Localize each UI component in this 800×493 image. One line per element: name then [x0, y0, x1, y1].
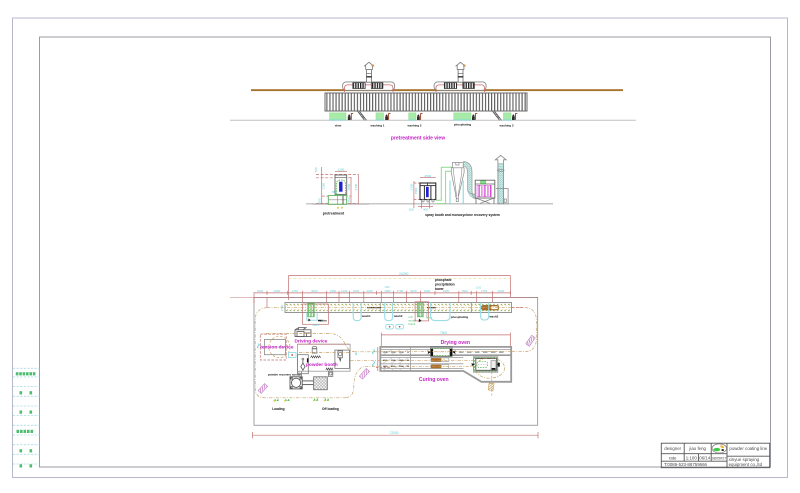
svg-text:washing 1: washing 1 [370, 123, 385, 127]
svg-text:3000: 3000 [311, 289, 318, 293]
svg-text:800: 800 [318, 198, 322, 203]
svg-text:3445: 3445 [366, 289, 373, 293]
svg-text:1500: 1500 [257, 289, 264, 293]
svg-text:flumk: flumk [408, 322, 415, 326]
svg-text:designer: designer [664, 446, 681, 451]
svg-text:Off loading: Off loading [322, 407, 339, 411]
svg-text:1150: 1150 [322, 182, 326, 189]
svg-text:1500: 1500 [424, 289, 431, 293]
svg-text:2450: 2450 [330, 289, 337, 293]
svg-text:3230: 3230 [410, 289, 417, 293]
svg-text:powder coating line: powder coating line [729, 446, 767, 451]
svg-text:750: 750 [347, 197, 351, 202]
svg-text:850: 850 [332, 190, 337, 194]
svg-text:washing 3: washing 3 [499, 123, 514, 127]
svg-text:7500: 7500 [440, 331, 447, 335]
svg-text:Drying oven: Drying oven [441, 340, 470, 346]
svg-text:pretreatment side view: pretreatment side view [391, 136, 445, 142]
svg-text:1700: 1700 [397, 289, 404, 293]
svg-text:72000: 72000 [390, 431, 399, 435]
svg-text:24250: 24250 [399, 272, 409, 276]
svg-text:T:0086-523-88759666: T:0086-523-88759666 [664, 462, 708, 467]
svg-text:1/20: 1/20 [476, 285, 482, 289]
svg-text:Loading: Loading [272, 407, 284, 411]
svg-text:400: 400 [423, 208, 428, 212]
svg-text:2200: 2200 [498, 289, 505, 293]
svg-text:1000: 1000 [341, 289, 348, 293]
svg-text:1700: 1700 [291, 289, 298, 293]
svg-text:1/20: 1/20 [384, 285, 390, 289]
svg-text:1500: 1500 [414, 187, 418, 194]
svg-text:1500: 1500 [347, 183, 351, 190]
svg-text:1:100: 1:100 [686, 456, 698, 461]
svg-text:rate: rate [669, 456, 677, 461]
svg-text:2700: 2700 [354, 183, 358, 190]
svg-text:tension device: tension device [260, 345, 294, 351]
svg-text:jiao feng: jiao feng [688, 446, 706, 451]
svg-text:washing 2: washing 2 [407, 123, 422, 127]
svg-text:phosphating: phosphating [454, 122, 472, 126]
svg-text:1500: 1500 [461, 289, 468, 293]
svg-text:2300: 2300 [443, 289, 450, 293]
svg-text:spray booth and monocyclone re: spray booth and monocyclone recovery sys… [425, 213, 500, 217]
svg-text:2500: 2500 [424, 174, 431, 178]
svg-text:wash1: wash1 [361, 314, 371, 318]
svg-text:150: 150 [408, 208, 413, 212]
svg-text:06/14: 06/14 [699, 456, 711, 461]
svg-text:tower: tower [435, 287, 445, 291]
svg-text:1000: 1000 [384, 289, 391, 293]
svg-text:1100: 1100 [338, 168, 345, 172]
svg-text:2250: 2250 [274, 289, 281, 293]
svg-text:powder booth: powder booth [306, 362, 338, 368]
svg-text:skim: skim [320, 319, 327, 323]
svg-text:Curing oven: Curing oven [419, 377, 449, 383]
svg-text:700: 700 [314, 167, 318, 172]
svg-text:phosphating: phosphating [451, 315, 469, 319]
svg-text:wash2: wash2 [393, 314, 403, 318]
svg-text:pretreatment: pretreatment [323, 211, 345, 215]
svg-text:skim: skim [335, 123, 342, 127]
svg-text:wash3: wash3 [488, 315, 498, 319]
svg-text:1485: 1485 [312, 323, 319, 327]
svg-text:Driving device: Driving device [295, 339, 328, 345]
svg-text:precipitation: precipitation [435, 282, 455, 286]
svg-text:phosphate: phosphate [435, 278, 452, 282]
svg-text:equipment co.,ltd: equipment co.,ltd [729, 462, 763, 467]
svg-text:1700: 1700 [481, 289, 488, 293]
svg-text:0805#27: 0805#27 [712, 457, 727, 461]
svg-text:powder recovery system: powder recovery system [268, 373, 302, 377]
svg-text:1000: 1000 [353, 289, 360, 293]
